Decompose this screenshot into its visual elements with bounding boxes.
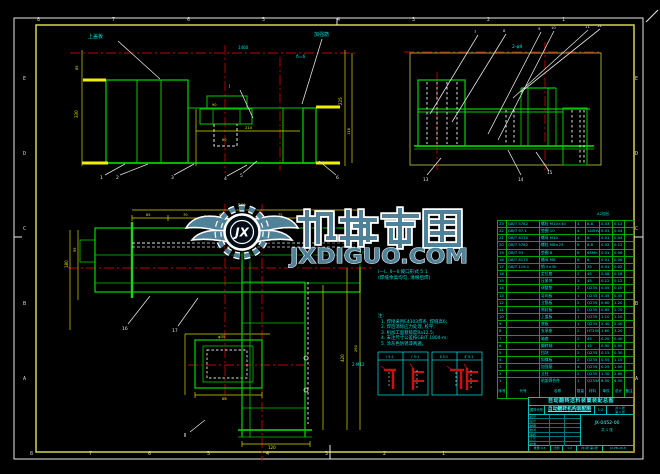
- bom-cell: 0.60: [600, 300, 613, 306]
- bom-cell: Q235: [586, 321, 600, 327]
- drawing-label: Ⅱ: [184, 433, 186, 439]
- bom-cell: Q235: [586, 371, 600, 377]
- signature-blank: [549, 424, 565, 427]
- bom-cell: 1: [576, 278, 586, 284]
- date-blank: [564, 415, 580, 418]
- scale-value: 1:2: [595, 406, 607, 414]
- bom-cell: 2.40: [613, 321, 625, 327]
- bom-cell: 0.55: [600, 357, 613, 363]
- date-blank: [564, 433, 580, 436]
- bom-cell: 2: [576, 300, 586, 306]
- bom-cell: 1: [576, 321, 586, 327]
- logo-initials: JX: [233, 226, 249, 240]
- document-subnote: 共 1 张: [581, 427, 633, 433]
- parts-list-rows: 23GB/T 5782螺栓 M10×4048.80.030.1222GB/T 9…: [498, 221, 633, 386]
- bom-row: 6翻转轴1450.900.90: [498, 343, 633, 350]
- bom-cell: 2: [576, 336, 586, 342]
- bom-cell: 0.12: [613, 242, 625, 248]
- bom-cell: 销 5×30: [540, 264, 576, 270]
- bom-cell: 12: [498, 300, 507, 306]
- bom-cell: 0.45: [600, 293, 613, 299]
- drawing-label: 420: [340, 354, 345, 362]
- cad-drawing-sheet: Ⅰ 5:1Ⅰ′ 5:1Ⅱ 5:1Ⅱ′ 5:1 上盖板加强筋δ=6Ⅰ1460123…: [0, 0, 660, 474]
- bom-row: 16定位套2450.080.16: [498, 271, 633, 278]
- bom-cell: 0.02: [613, 264, 625, 270]
- bom-cell: 4: [576, 235, 586, 241]
- bom-cell: [625, 228, 633, 234]
- drawing-label: 65: [146, 213, 151, 217]
- zone-label: 5: [262, 17, 265, 23]
- bom-cell: [625, 285, 633, 291]
- bom-cell: 45: [586, 278, 600, 284]
- drawing-label: 60: [222, 138, 227, 142]
- drawing-label: 85: [75, 65, 79, 70]
- bom-cell: 6: [576, 242, 586, 248]
- sheet-count-cell: 共 1 张 第 1 张: [607, 406, 633, 414]
- bom-cell: HT200: [586, 328, 600, 334]
- bom-cell: 3.20: [613, 328, 625, 334]
- bom-cell: 0.16: [613, 271, 625, 277]
- drawing-label: 2-φ9: [512, 44, 522, 50]
- signature-label: 审核: [529, 433, 549, 436]
- bom-cell: 1.10: [613, 314, 625, 320]
- bom-row: 2立柱2Q2351.302.60: [498, 371, 633, 378]
- bom-cell: 6.50: [613, 378, 625, 385]
- bom-cell: 0.01: [600, 250, 613, 256]
- bom-cell: 4: [576, 221, 586, 227]
- bom-row: 14调整垫2Q2350.050.10: [498, 285, 633, 292]
- bom-cell: 0.01: [600, 264, 613, 270]
- bom-cell: [507, 364, 540, 370]
- bom-cell: [625, 343, 633, 349]
- zone-label: B: [635, 301, 638, 307]
- zone-label: 7: [112, 17, 115, 23]
- drawing-label: 10: [551, 25, 556, 30]
- drawing-label: 上盖板: [88, 33, 103, 40]
- bom-cell: 0.04: [613, 228, 625, 234]
- bom-cell: 2: [576, 357, 586, 363]
- bom-cell: 调整垫: [540, 285, 576, 291]
- zone-label: C: [23, 226, 26, 232]
- bom-cell: 6.50: [600, 378, 613, 385]
- bom-cell: 0.05: [600, 285, 613, 291]
- title-block: 自动翻转送料装置装配总图 图样代号 自动翻转机构装配图 1:2 共 1 张 第 …: [528, 397, 634, 452]
- signature-label: 校对: [529, 428, 549, 431]
- bom-cell: 0.01: [600, 235, 613, 241]
- bom-row: 20GB/T 5782螺栓 M8×2568.80.020.12: [498, 242, 633, 249]
- zone-label: 3: [412, 17, 415, 23]
- bom-cell: 上盖板: [540, 314, 576, 320]
- bom-cell: GB/T 93: [507, 250, 540, 256]
- drawing-label: 118: [347, 127, 351, 135]
- drawing-label: 1460: [238, 45, 249, 50]
- bom-cell: [507, 307, 540, 313]
- bom-cell: 3: [498, 364, 507, 370]
- drawing-label: 120: [268, 445, 276, 450]
- bom-cell: 1.30: [600, 371, 613, 377]
- bom-cell: 0.12: [613, 278, 625, 284]
- bom-cell: 2: [576, 271, 586, 277]
- bom-row: 3加强筋4Q2350.251.00: [498, 364, 633, 371]
- bom-cell: 螺栓 M8×25: [540, 242, 576, 248]
- drawing-name: 自动翻转机构装配图: [545, 406, 595, 414]
- weld-cell-label: Ⅱ′ 5:1: [465, 355, 474, 359]
- bom-cell: [625, 257, 633, 263]
- bom-cell: 0.15: [600, 350, 613, 356]
- date-blank: [564, 424, 580, 427]
- bom-row: 5挡块2Q2350.150.30: [498, 350, 633, 357]
- bom-cell: Q235: [586, 314, 600, 320]
- bom-row: 4斜撑板2Q2350.551.10: [498, 357, 633, 364]
- bom-cell: 1.10: [613, 357, 625, 363]
- bom-cell: 名称: [540, 386, 576, 398]
- zone-label: D: [23, 151, 26, 157]
- bom-cell: [507, 285, 540, 291]
- bom-cell: 8.8: [586, 221, 600, 227]
- bom-cell: 0.90: [600, 343, 613, 349]
- drawing-label: 3: [171, 175, 174, 181]
- drawing-label: 13: [423, 177, 429, 182]
- bom-cell: [625, 371, 633, 377]
- bom-cell: 1.60: [600, 328, 613, 334]
- zone-label: 8: [37, 17, 40, 23]
- bom-cell: 45: [586, 343, 600, 349]
- bom-cell: 代号: [507, 386, 540, 398]
- bom-cell: 4: [498, 357, 507, 363]
- bom-cell: 2: [576, 350, 586, 356]
- bom-cell: 1: [576, 343, 586, 349]
- zone-label: 8: [30, 451, 33, 457]
- bom-cell: [507, 314, 540, 320]
- drawing-label: 210: [245, 125, 253, 130]
- drawing-label: Ⅰ: [229, 84, 230, 90]
- bom-cell: Q235: [586, 300, 600, 306]
- bom-cell: Q235: [586, 364, 600, 370]
- bom-cell: 2: [576, 264, 586, 270]
- bom-cell: 7: [498, 336, 507, 342]
- view-side-elevation: [404, 29, 601, 175]
- bom-cell: GB/T 5782: [507, 242, 540, 248]
- drawing-label: 330: [74, 110, 79, 118]
- bom-cell: [625, 242, 633, 248]
- signature-blank: [549, 433, 565, 436]
- watermark-logo: JX JXDIGUO.COM: [186, 208, 468, 268]
- bom-row: 11侧封板2Q2350.851.70: [498, 307, 633, 314]
- date-blank: [564, 437, 580, 440]
- bom-cell: 14: [498, 285, 507, 291]
- bom-row: 23GB/T 5782螺栓 M10×4048.80.030.12: [498, 221, 633, 228]
- bom-cell: 18: [498, 257, 507, 263]
- parts-list-table: 23GB/T 5782螺栓 M10×4048.80.030.1222GB/T 9…: [497, 220, 634, 399]
- bom-cell: 4: [576, 364, 586, 370]
- zone-label: 6: [187, 17, 190, 23]
- bom-cell: 21: [498, 235, 507, 241]
- bom-cell: [625, 307, 633, 313]
- drawing-label: 16: [122, 326, 128, 332]
- bom-cell: 16: [498, 271, 507, 277]
- drawing-label: 9: [538, 26, 541, 31]
- drawing-label: 95: [73, 247, 77, 252]
- bom-cell: 0.12: [600, 278, 613, 284]
- bom-cell: 11: [498, 307, 507, 313]
- bom-cell: 19: [498, 250, 507, 256]
- bom-cell: 0.02: [600, 242, 613, 248]
- drawing-label: 加强筋: [314, 31, 329, 38]
- bom-cell: [625, 328, 633, 334]
- signature-label: 制图: [529, 424, 549, 427]
- bom-cell: 备注: [625, 386, 633, 398]
- zone-label: 1: [442, 451, 445, 457]
- bom-cell: 0.90: [613, 343, 625, 349]
- bom-cell: GB/T 6170: [507, 257, 540, 263]
- bom-cell: 23: [498, 221, 507, 227]
- bom-cell: 8.8: [586, 242, 600, 248]
- bom-cell: 数量: [576, 386, 586, 398]
- title-block-body: 标记设计制图校对审核工艺批准 JX-0452-00 共 1 张: [529, 415, 633, 446]
- bom-cell: 6: [498, 343, 507, 349]
- bom-cell: 导向板: [540, 293, 576, 299]
- bom-cell: 1: [576, 314, 586, 320]
- bom-cell: 35: [586, 264, 600, 270]
- drawing-label: 14: [518, 177, 524, 182]
- bom-cell: 材料: [586, 386, 600, 398]
- bom-cell: 支承座: [540, 328, 576, 334]
- drawing-label: 260: [354, 344, 358, 352]
- bom-cell: 65Mn: [586, 250, 600, 256]
- bom-cell: 加强筋: [540, 364, 576, 370]
- bom-cell: Q235: [586, 293, 600, 299]
- signature-blank: [549, 428, 565, 431]
- bom-row: 13导向板1Q2350.450.45: [498, 293, 633, 300]
- drawing-label: φ35: [218, 334, 226, 339]
- bom-cell: 侧封板: [540, 307, 576, 313]
- bom-cell: 20: [498, 242, 507, 248]
- bom-cell: 翻转轴: [540, 343, 576, 349]
- bom-cell: 1: [576, 378, 586, 385]
- zone-label: D: [635, 151, 638, 157]
- bom-cell: 2.40: [600, 321, 613, 327]
- weld-note-block: Ⅰ—Ⅰ、Ⅱ—Ⅱ 坡口形式 5:1(焊缝余高均匀, 清根后焊): [378, 270, 488, 282]
- title-block-bottom-row: 重量 0.8比例1:2共1张 第1张JX-PB-20-8: [529, 446, 633, 452]
- bom-cell: [625, 364, 633, 370]
- title-bottom-cell: 重量 0.8: [529, 446, 551, 452]
- drawing-label: 15: [547, 170, 553, 175]
- title-bottom-cell: 共1张 第1张: [577, 446, 603, 452]
- bom-cell: [507, 293, 540, 299]
- bom-cell: 斜撑板: [540, 357, 576, 363]
- bom-row: 9底板1Q2352.402.40: [498, 321, 633, 328]
- bom-cell: [507, 350, 540, 356]
- zone-label: E: [635, 76, 638, 82]
- bom-row: 1机架焊合件1Q235A6.506.50: [498, 378, 633, 385]
- bom-cell: 17: [498, 264, 507, 270]
- drawing-label: 86: [222, 396, 227, 401]
- signature-blank: [549, 419, 565, 422]
- bom-cell: 4: [576, 228, 586, 234]
- drawing-label: 180: [64, 260, 69, 268]
- date-blank: [564, 419, 580, 422]
- bom-cell: 9: [498, 321, 507, 327]
- bom-cell: Q235: [586, 285, 600, 291]
- view-front-elevation: [70, 39, 358, 176]
- signature-label: 工艺: [529, 437, 549, 440]
- zone-label: 4: [337, 17, 340, 23]
- weld-detail-labels: Ⅰ 5:1Ⅰ′ 5:1Ⅱ 5:1Ⅱ′ 5:1: [386, 355, 473, 359]
- drawing-label: 12: [597, 23, 602, 28]
- drawing-label: 5: [240, 173, 243, 179]
- bom-cell: Q235: [586, 350, 600, 356]
- bom-cell: 0.85: [600, 307, 613, 313]
- weld-cell-label: Ⅱ 5:1: [440, 355, 448, 359]
- bom-cell: 2.60: [613, 371, 625, 377]
- bom-cell: 挡块: [540, 350, 576, 356]
- bom-row: 17GB/T 119.1销 5×302350.010.02: [498, 264, 633, 271]
- bom-cell: [625, 350, 633, 356]
- bom-cell: 1.10: [600, 314, 613, 320]
- drawing-label: 2-M12: [352, 362, 365, 367]
- zone-label: A: [23, 376, 26, 382]
- bom-cell: 序号: [498, 386, 507, 398]
- bom-cell: [625, 378, 633, 385]
- bom-cell: 0.30: [613, 350, 625, 356]
- bom-cell: 8: [586, 257, 600, 263]
- bom-cell: 1: [576, 293, 586, 299]
- bom-cell: [625, 264, 633, 270]
- document-number-cell: JX-0452-00 共 1 张: [581, 415, 633, 445]
- bom-cell: [625, 336, 633, 342]
- bom-cell: 螺栓 M10×40: [540, 221, 576, 227]
- bom-cell: GB/T 5782: [507, 221, 540, 227]
- drawing-label: 4: [224, 176, 227, 182]
- bom-cell: [507, 371, 540, 377]
- weld-detail-boxes: Ⅰ 5:1Ⅰ′ 5:1Ⅱ 5:1Ⅱ′ 5:1: [378, 352, 482, 395]
- bom-row: 22GB/T 97.1垫圈 104140HV0.010.04: [498, 228, 633, 235]
- title-bottom-cell: 1:2: [563, 446, 577, 452]
- bom-cell: [625, 357, 633, 363]
- bom-cell: [625, 235, 633, 241]
- weld-cell-label: Ⅰ 5:1: [386, 355, 394, 359]
- drawing-caption: 自动翻转送料装置装配总图: [529, 398, 633, 406]
- bom-cell: [507, 378, 540, 385]
- bom-cell: 45: [586, 336, 600, 342]
- drawing-label: 8: [503, 28, 506, 33]
- signature-blank: [549, 415, 565, 418]
- bom-cell: [507, 336, 540, 342]
- drawing-label: 70: [183, 213, 188, 217]
- zone-label: 1: [562, 17, 565, 23]
- bom-cell: 1: [498, 378, 507, 385]
- bom-cell: [625, 221, 633, 227]
- drawing-label: 1: [100, 175, 103, 181]
- zone-label: 2: [487, 17, 490, 23]
- bom-row: 10上盖板1Q2351.101.10: [498, 314, 633, 321]
- bom-cell: 垫圈 8: [540, 250, 576, 256]
- bom-cell: 0.06: [613, 257, 625, 263]
- bom-cell: Q235A: [586, 378, 600, 385]
- zone-label: B: [23, 301, 26, 307]
- bom-cell: GB/T 97.1: [507, 228, 540, 234]
- zone-label: 2: [383, 451, 386, 457]
- drawing-label: 90: [212, 103, 217, 107]
- bom-cell: [507, 321, 540, 327]
- bom-cell: 0.01: [600, 257, 613, 263]
- bom-cell: 2: [498, 371, 507, 377]
- drawing-label: 225: [338, 97, 343, 105]
- drawing-label: 17: [172, 328, 178, 334]
- bom-cell: 0.12: [613, 221, 625, 227]
- bom-cell: 15: [498, 278, 507, 284]
- bom-cell: [507, 278, 540, 284]
- drawing-label: 6: [336, 175, 339, 181]
- sheet-number: 第 1 张: [607, 410, 633, 414]
- bom-cell: 140HV: [586, 228, 600, 234]
- bom-cell: 底板: [540, 321, 576, 327]
- signature-blank: [549, 437, 565, 440]
- bom-row: 12立筋板2Q2350.601.20: [498, 300, 633, 307]
- bom-cell: 8: [586, 235, 600, 241]
- signature-label: 设计: [529, 419, 549, 422]
- bom-cell: Q235: [586, 357, 600, 363]
- bom-cell: 立筋板: [540, 300, 576, 306]
- title-block-row2: 图样代号 自动翻转机构装配图 1:2 共 1 张 第 1 张: [529, 406, 633, 415]
- bom-cell: 22: [498, 228, 507, 234]
- bom-cell: 8: [498, 328, 507, 334]
- zone-label: 7: [89, 451, 92, 457]
- bom-cell: [507, 357, 540, 363]
- bom-cell: [507, 271, 540, 277]
- bom-cell: 立柱: [540, 371, 576, 377]
- zone-label: 5: [207, 451, 210, 457]
- zone-label: 6: [148, 451, 151, 457]
- bom-cell: 单件: [600, 386, 613, 398]
- bom-row: 8支承座2HT2001.603.20: [498, 328, 633, 335]
- bom-cell: 2: [576, 328, 586, 334]
- title-bottom-cell: JX-PB-20-8: [603, 446, 633, 452]
- bom-cell: 压紧块: [540, 278, 576, 284]
- signature-fields: 标记设计制图校对审核工艺批准: [529, 415, 581, 445]
- weld-cell-label: Ⅰ′ 5:1: [411, 355, 419, 359]
- watermark-domain: JXDIGUO.COM: [288, 244, 468, 268]
- bom-cell: 1.70: [613, 307, 625, 313]
- bom-cell: GB/T 6170: [507, 235, 540, 241]
- zone-label: 4: [266, 451, 269, 457]
- bom-cell: 0.04: [613, 235, 625, 241]
- bom-cell: 0.08: [600, 271, 613, 277]
- bom-cell: 2: [576, 307, 586, 313]
- zone-label: A: [635, 376, 638, 382]
- bom-cell: 5: [498, 350, 507, 356]
- bom-cell: 定位套: [540, 271, 576, 277]
- bom-cell: 螺母 M10: [540, 235, 576, 241]
- parts-list-header: 序号代号名称数量材料单件总计备注: [498, 386, 633, 398]
- bom-cell: [625, 278, 633, 284]
- note-line: 5. 涂灰色防锈漆两遍。: [378, 342, 488, 348]
- signature-label: 标记: [529, 415, 549, 418]
- bom-cell: 0.06: [613, 250, 625, 256]
- bom-cell: 1.20: [613, 300, 625, 306]
- zone-label: 3: [325, 451, 328, 457]
- bom-cell: [507, 328, 540, 334]
- drawing-label: δ=6: [296, 54, 306, 60]
- bom-cell: 2: [576, 371, 586, 377]
- bom-cell: 螺母 M8: [540, 257, 576, 263]
- bom-cell: 6: [576, 257, 586, 263]
- bom-cell: 0.10: [613, 285, 625, 291]
- bom-cell: [625, 250, 633, 256]
- bom-cell: 1.00: [613, 364, 625, 370]
- bom-cell: [625, 300, 633, 306]
- bom-row: 19GB/T 93垫圈 8665Mn0.010.06: [498, 250, 633, 257]
